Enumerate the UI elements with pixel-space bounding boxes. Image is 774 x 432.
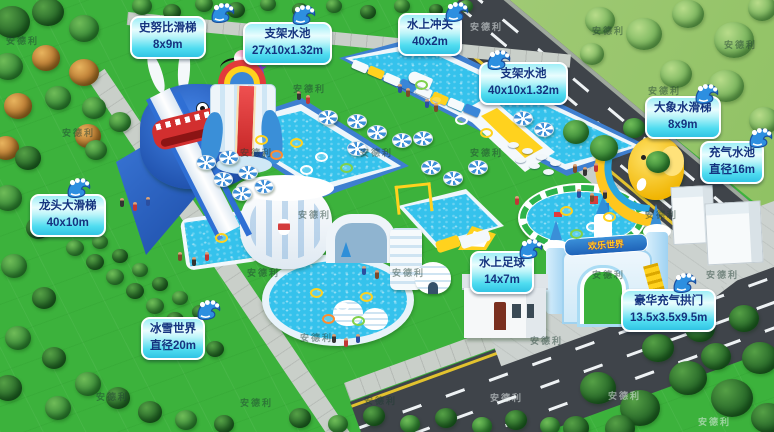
watermark-text: 安德利: [293, 82, 326, 95]
pool-water: [269, 261, 407, 339]
label-size: 40x10x1.32m: [488, 83, 559, 100]
tree: [82, 97, 106, 119]
watermark-text: 安德利: [364, 394, 397, 407]
igloo-door: [428, 282, 438, 294]
watermark-text: 安德利: [360, 146, 393, 159]
tree: [289, 408, 311, 428]
umbrella: [213, 172, 233, 187]
pool-float: [360, 292, 373, 302]
person-figure: [515, 196, 519, 205]
watermark-text: 安德利: [62, 126, 95, 139]
tree: [15, 146, 41, 169]
tree: [206, 341, 224, 357]
tree: [32, 287, 56, 309]
watermark-text: 安德利: [698, 415, 731, 428]
watermark-text: 安德利: [247, 266, 280, 279]
pool-float: [215, 233, 228, 243]
tree: [472, 417, 492, 432]
tree: [400, 415, 420, 432]
tree: [435, 408, 457, 428]
umbrella: [421, 160, 441, 175]
polar-bear-figure: [278, 219, 290, 235]
label-name: 史努比滑梯: [139, 20, 197, 37]
wave-splash-icon: [518, 237, 544, 264]
pool-float: [290, 138, 303, 148]
umbrella: [254, 179, 274, 194]
watermark-text: 安德利: [706, 268, 739, 281]
pool-float: [255, 135, 268, 145]
tree: [672, 0, 704, 28]
person-figure: [398, 84, 402, 93]
umbrella: [318, 110, 338, 125]
label-size: 直径16m: [709, 162, 755, 179]
umbrella-top: [221, 178, 225, 182]
person-figure: [120, 198, 124, 207]
stepping-stone: [508, 142, 519, 148]
tree: [175, 410, 197, 430]
person-figure: [434, 103, 438, 112]
tree: [748, 0, 774, 21]
watermark-text: 安德利: [608, 389, 641, 402]
umbrella: [367, 125, 387, 140]
umbrella-top: [326, 116, 330, 120]
tree: [92, 235, 108, 249]
person-figure: [583, 167, 587, 176]
tree: [360, 5, 376, 19]
umbrella-top: [240, 192, 244, 196]
umbrella-top: [355, 147, 359, 151]
umbrella: [347, 114, 367, 129]
umbrella: [392, 133, 412, 148]
tree: [66, 240, 84, 256]
tree: [563, 416, 589, 432]
tree: [45, 396, 71, 419]
tree: [42, 347, 66, 369]
watermark-text: 安德利: [470, 146, 503, 159]
label-luxury-arch: 豪华充气拱门 13.5x3.5x9.5m: [621, 289, 716, 332]
house-window: [512, 304, 521, 318]
watermark-text: 安德利: [490, 391, 523, 404]
wave-splash-icon: [748, 126, 774, 153]
tree: [729, 305, 759, 332]
umbrella-top: [227, 156, 231, 160]
umbrella: [443, 171, 463, 186]
person-figure: [362, 266, 366, 275]
football-goal: [395, 182, 434, 215]
umbrella-top: [262, 185, 266, 189]
person-figure: [192, 257, 196, 266]
label-size: 8x9m: [654, 117, 712, 134]
pool-float: [352, 316, 365, 326]
pool-float: [336, 302, 349, 312]
ice-wave-slide: [240, 183, 332, 269]
stepping-stone: [536, 154, 547, 160]
umbrella-top: [542, 128, 546, 132]
tree: [326, 0, 342, 13]
stepping-stone: [550, 160, 561, 166]
tree: [646, 151, 670, 173]
umbrella: [513, 111, 533, 126]
umbrella-top: [476, 166, 480, 170]
tree: [363, 406, 385, 426]
tree: [751, 403, 774, 432]
person-figure: [590, 193, 594, 202]
tree: [172, 291, 188, 305]
umbrella: [413, 131, 433, 146]
tree: [32, 45, 60, 70]
gate-banner-text: 欢乐世界: [588, 239, 625, 251]
pool-float: [570, 229, 583, 239]
watermark-text: 安德利: [592, 268, 625, 281]
tree: [505, 410, 527, 430]
tree: [260, 0, 276, 11]
person-figure: [577, 189, 581, 198]
pool-float: [603, 212, 616, 222]
tree: [126, 283, 144, 299]
umbrella: [238, 165, 258, 180]
wave-splash-icon: [210, 1, 236, 28]
person-figure: [133, 202, 137, 211]
tree: [563, 120, 589, 143]
water-park-plan: 欢乐世界 安德利安德利安德利安德利安德利安德利安德利安德利安德利安德利安德利安德…: [0, 0, 774, 432]
person-figure: [603, 190, 607, 199]
umbrella-top: [521, 117, 525, 121]
person-figure: [425, 99, 429, 108]
person-figure: [205, 252, 209, 261]
tree: [394, 0, 410, 13]
label-size: 40x2m: [407, 34, 453, 51]
umbrella: [219, 150, 239, 165]
person-figure: [344, 338, 348, 347]
tree: [138, 401, 162, 423]
person-figure: [375, 270, 379, 279]
label-frame-pool-27: 支架水池 27x10x1.32m: [243, 22, 332, 65]
tree: [328, 415, 348, 432]
watermark-text: 安德利: [724, 38, 757, 51]
tree: [5, 326, 31, 349]
pool-float: [300, 165, 313, 175]
igloo-small: [362, 308, 388, 330]
watermark-text: 安德利: [298, 208, 331, 221]
person-figure: [573, 164, 577, 173]
umbrella: [196, 155, 216, 170]
umbrella: [232, 186, 252, 201]
watermark-text: 安德利: [240, 396, 273, 409]
wave-splash-icon: [291, 3, 317, 30]
person-figure: [356, 334, 360, 343]
pool-float: [315, 152, 328, 162]
tree: [214, 415, 234, 432]
person-figure: [594, 163, 598, 172]
umbrella: [468, 160, 488, 175]
tree: [742, 342, 774, 374]
watermark-text: 安德利: [645, 208, 678, 221]
label-size: 13.5x3.5x9.5m: [630, 310, 707, 327]
tree: [112, 249, 128, 263]
ice-tunnel-arch: [326, 214, 396, 263]
tree: [109, 112, 131, 132]
building-side: [748, 202, 762, 262]
tree: [590, 135, 618, 160]
label-size: 直径20m: [150, 338, 196, 355]
tree: [0, 53, 23, 80]
tree: [623, 118, 645, 138]
pool-float: [586, 222, 599, 232]
storage-building: [704, 201, 763, 266]
tree: [580, 43, 604, 65]
tree: [146, 298, 164, 314]
stepping-stone: [522, 148, 533, 154]
label-snoopy-slide: 史努比滑梯 8x9m: [130, 16, 206, 59]
stepping-stone: [543, 169, 554, 175]
umbrella-top: [355, 120, 359, 124]
person-figure: [178, 252, 182, 261]
watermark-text: 安德利: [300, 331, 333, 344]
tree: [69, 59, 99, 86]
tree: [132, 0, 152, 15]
umbrella-top: [375, 131, 379, 135]
pool-float: [415, 80, 428, 90]
tree: [69, 15, 99, 42]
tree: [0, 375, 22, 400]
label-size: 8x9m: [139, 37, 197, 54]
label-size: 14x7m: [479, 272, 525, 289]
wave-splash-icon: [672, 271, 698, 298]
tree: [106, 269, 124, 285]
tower-spire: [550, 220, 562, 240]
tree: [701, 343, 731, 370]
watermark-text: 安德利: [6, 34, 39, 47]
umbrella-top: [429, 166, 433, 170]
tree: [152, 277, 168, 291]
umbrella-top: [421, 137, 425, 141]
wave-splash-icon: [444, 0, 470, 27]
label-size: 40x10m: [39, 215, 97, 232]
tree: [540, 417, 560, 432]
umbrella-top: [400, 139, 404, 143]
stepping-stone: [515, 157, 526, 163]
person-figure: [406, 88, 410, 97]
tree: [0, 185, 22, 210]
watermark-text: 安德利: [392, 266, 425, 279]
person-figure: [306, 95, 310, 104]
wave-splash-icon: [486, 48, 512, 75]
umbrella-top: [204, 161, 208, 165]
wave-splash-icon: [66, 176, 92, 203]
tree: [45, 86, 71, 109]
stepping-stone: [529, 163, 540, 169]
watermark-text: 安德利: [470, 20, 503, 33]
pool-float: [310, 288, 323, 298]
watermark-text: 安德利: [592, 24, 625, 37]
tree: [85, 140, 107, 160]
umbrella-top: [246, 171, 250, 175]
tree: [132, 263, 148, 277]
watermark-text: 安德利: [96, 390, 129, 403]
wave-splash-icon: [694, 82, 720, 109]
person-figure: [146, 197, 150, 206]
tree: [626, 18, 662, 50]
pool-float: [560, 206, 573, 216]
tree: [642, 334, 674, 363]
umbrella-top: [451, 177, 455, 181]
label-name: 冰雪世界: [150, 321, 196, 338]
house-window: [527, 304, 534, 318]
blue-spire: [341, 242, 351, 257]
house-door: [494, 302, 506, 330]
tree: [711, 379, 753, 417]
watermark-text: 安德利: [530, 334, 563, 347]
pool-float: [455, 115, 468, 125]
tree: [4, 93, 32, 118]
pool-float: [480, 128, 493, 138]
wave-splash-icon: [196, 298, 222, 325]
pool-float: [322, 314, 335, 324]
umbrella: [534, 122, 554, 137]
tree: [32, 0, 64, 26]
tree: [86, 254, 104, 270]
label-size: 27x10x1.32m: [252, 43, 323, 60]
watermark-text: 安德利: [240, 146, 273, 159]
tree: [669, 361, 707, 395]
tree: [1, 254, 27, 277]
pool-float: [340, 163, 353, 173]
